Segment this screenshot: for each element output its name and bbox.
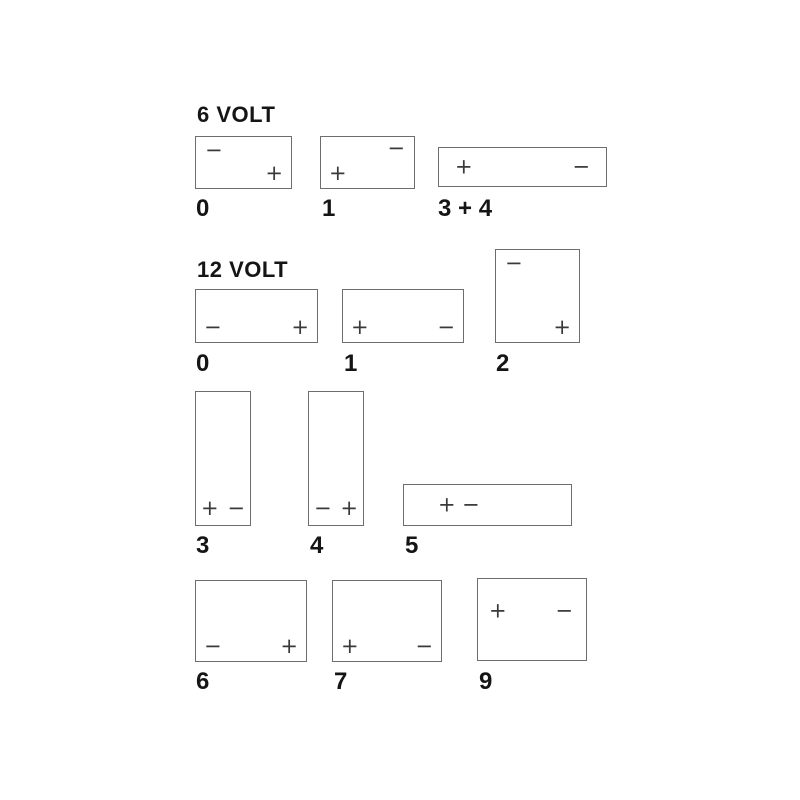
battery-box-12v-2: − + <box>495 249 580 343</box>
plus-terminal: + <box>341 636 359 657</box>
plus-terminal: + <box>291 317 309 338</box>
battery-box-12v-4: − + <box>308 391 364 526</box>
minus-terminal: − <box>555 601 573 622</box>
battery-label-12v-7: 7 <box>334 670 347 694</box>
battery-label-12v-5: 5 <box>405 534 418 558</box>
plus-terminal: + <box>201 498 219 519</box>
battery-box-12v-0: − + <box>195 289 318 343</box>
diagram-canvas: 6 VOLT − + 0 − + 1 + − 3 + 4 12 VOLT − +… <box>0 0 800 800</box>
battery-label-6v-0: 0 <box>196 197 209 221</box>
minus-terminal: − <box>204 317 222 338</box>
battery-box-12v-3: + − <box>195 391 251 526</box>
plus-terminal: + <box>280 636 298 657</box>
battery-box-6v-3-4: + − <box>438 147 607 187</box>
battery-box-6v-0: − + <box>195 136 292 189</box>
plus-terminal: + <box>351 317 369 338</box>
minus-terminal: − <box>314 498 332 519</box>
minus-terminal: − <box>205 140 223 161</box>
minus-terminal: − <box>437 317 455 338</box>
battery-label-12v-3: 3 <box>196 534 209 558</box>
section-title-12-volt: 12 VOLT <box>197 259 288 281</box>
battery-box-12v-7: + − <box>332 580 442 662</box>
minus-terminal: − <box>572 157 590 178</box>
minus-terminal: − <box>505 253 523 274</box>
plus-terminal: + <box>455 157 473 178</box>
plus-terminal: + <box>489 601 507 622</box>
battery-label-12v-6: 6 <box>196 670 209 694</box>
battery-box-12v-9: + − <box>477 578 587 661</box>
minus-terminal: − <box>227 498 245 519</box>
plus-terminal: + <box>340 498 358 519</box>
battery-label-12v-1: 1 <box>344 352 357 376</box>
plus-terminal: + <box>438 495 456 516</box>
minus-terminal: − <box>387 138 405 159</box>
minus-terminal: − <box>204 636 222 657</box>
battery-label-6v-3-4: 3 + 4 <box>438 197 492 221</box>
battery-box-6v-1: − + <box>320 136 415 189</box>
minus-terminal: − <box>415 636 433 657</box>
plus-terminal: + <box>265 163 283 184</box>
battery-label-6v-1: 1 <box>322 197 335 221</box>
battery-label-12v-0: 0 <box>196 352 209 376</box>
battery-box-12v-1: + − <box>342 289 464 343</box>
battery-box-12v-6: − + <box>195 580 307 662</box>
plus-terminal: + <box>553 317 571 338</box>
plus-terminal: + <box>329 163 347 184</box>
battery-label-12v-9: 9 <box>479 670 492 694</box>
minus-terminal: − <box>462 495 480 516</box>
section-title-6-volt: 6 VOLT <box>197 104 275 126</box>
battery-label-12v-2: 2 <box>496 352 509 376</box>
battery-label-12v-4: 4 <box>310 534 323 558</box>
battery-box-12v-5: + − <box>403 484 572 526</box>
